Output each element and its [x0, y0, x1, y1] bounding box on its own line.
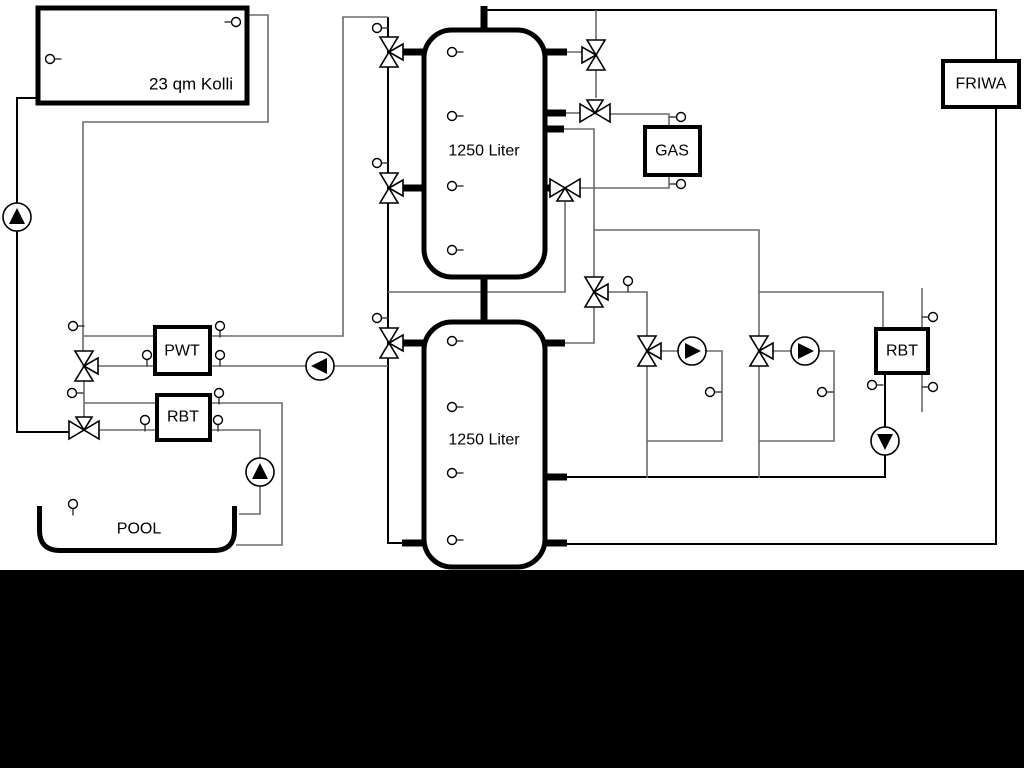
- pipe-heating-branch: [594, 230, 759, 337]
- temp-sensor-icon: [922, 313, 938, 322]
- pipe-tank-valve-riser: [388, 17, 404, 543]
- three-way-valve-icon: [75, 351, 98, 381]
- pump-icon: [678, 337, 706, 365]
- stub: [402, 340, 425, 347]
- three-way-valve-icon: [638, 336, 661, 366]
- hydraulic-schematic: 23 qm Kolli 1250 Liter 1250 Liter PWT RB…: [0, 0, 1024, 768]
- three-way-valve-icon: [580, 100, 610, 122]
- rbt-right-label: RBT: [886, 343, 918, 360]
- stub: [546, 540, 567, 547]
- pump-icon: [3, 203, 31, 231]
- three-way-valve-icon: [582, 40, 605, 70]
- three-way-valve-icon: [380, 37, 403, 67]
- temp-sensor-icon: [68, 389, 84, 398]
- pipe-bottom-return: [567, 375, 885, 477]
- pipe-rbt-right-top: [759, 292, 883, 329]
- pump-icon: [246, 458, 274, 486]
- pool-label: POOL: [117, 521, 162, 538]
- pipe-rbt-pool-pump: [100, 430, 260, 514]
- three-way-valve-icon: [750, 336, 773, 366]
- three-way-valve-icon: [380, 328, 403, 358]
- temp-sensor-icon: [670, 113, 686, 122]
- stub: [545, 126, 564, 133]
- pipe-valve9-group1: [608, 292, 647, 337]
- buffer-tank-bottom-label: 1250 Liter: [448, 432, 520, 449]
- pwt-label: PWT: [164, 343, 200, 360]
- temp-sensor-icon: [670, 180, 686, 189]
- three-way-valve-icon: [380, 173, 403, 203]
- temp-sensor-icon: [69, 500, 78, 516]
- buffer-tank-top-label: 1250 Liter: [448, 143, 520, 160]
- stub: [402, 49, 425, 56]
- pipe-tank-mid-drop: [563, 129, 594, 278]
- temp-sensor-icon: [143, 351, 152, 367]
- gas-boiler-label: GAS: [655, 143, 689, 160]
- pipe-top-friwa-loop: [484, 10, 996, 544]
- three-way-valve-icon: [585, 277, 608, 307]
- temp-sensor-icon: [922, 383, 938, 392]
- black-band: [0, 570, 1024, 768]
- three-way-valve-icon: [550, 179, 580, 201]
- temp-sensor-icon: [216, 351, 225, 367]
- temp-sensor-icon: [624, 277, 633, 293]
- pump-icon: [306, 352, 334, 380]
- stub: [545, 110, 566, 117]
- pump-icon: [871, 427, 899, 455]
- temp-sensor-icon: [214, 416, 223, 432]
- solar-collector-label: 23 qm Kolli: [149, 75, 233, 94]
- temp-sensor-icon: [373, 24, 389, 33]
- rbt-left-label: RBT: [167, 409, 199, 426]
- pipe-solar-supply: [17, 98, 69, 432]
- temp-sensor-icon: [818, 388, 834, 397]
- friwa-label: FRIWA: [956, 76, 1007, 93]
- stub: [545, 49, 567, 56]
- stub: [546, 474, 567, 481]
- temp-sensor-icon: [69, 322, 85, 331]
- temp-sensor-icon: [706, 388, 722, 397]
- tank-mid-connector: [481, 276, 488, 324]
- component-boxes: 23 qm Kolli 1250 Liter 1250 Liter PWT RB…: [38, 8, 1019, 567]
- three-way-valve-icon: [69, 417, 99, 439]
- temp-sensor-icon: [215, 389, 224, 405]
- hydraulic-schematic-page: 23 qm Kolli 1250 Liter 1250 Liter PWT RB…: [0, 0, 1024, 768]
- temp-sensor-icon: [373, 159, 389, 168]
- pump-icon: [791, 337, 819, 365]
- temp-sensor-icon: [373, 314, 389, 323]
- pipe-valve9-tank: [564, 307, 594, 343]
- temp-sensor-icon: [141, 416, 150, 432]
- temp-sensor-icon: [868, 381, 884, 390]
- temp-sensor-icon: [216, 322, 225, 338]
